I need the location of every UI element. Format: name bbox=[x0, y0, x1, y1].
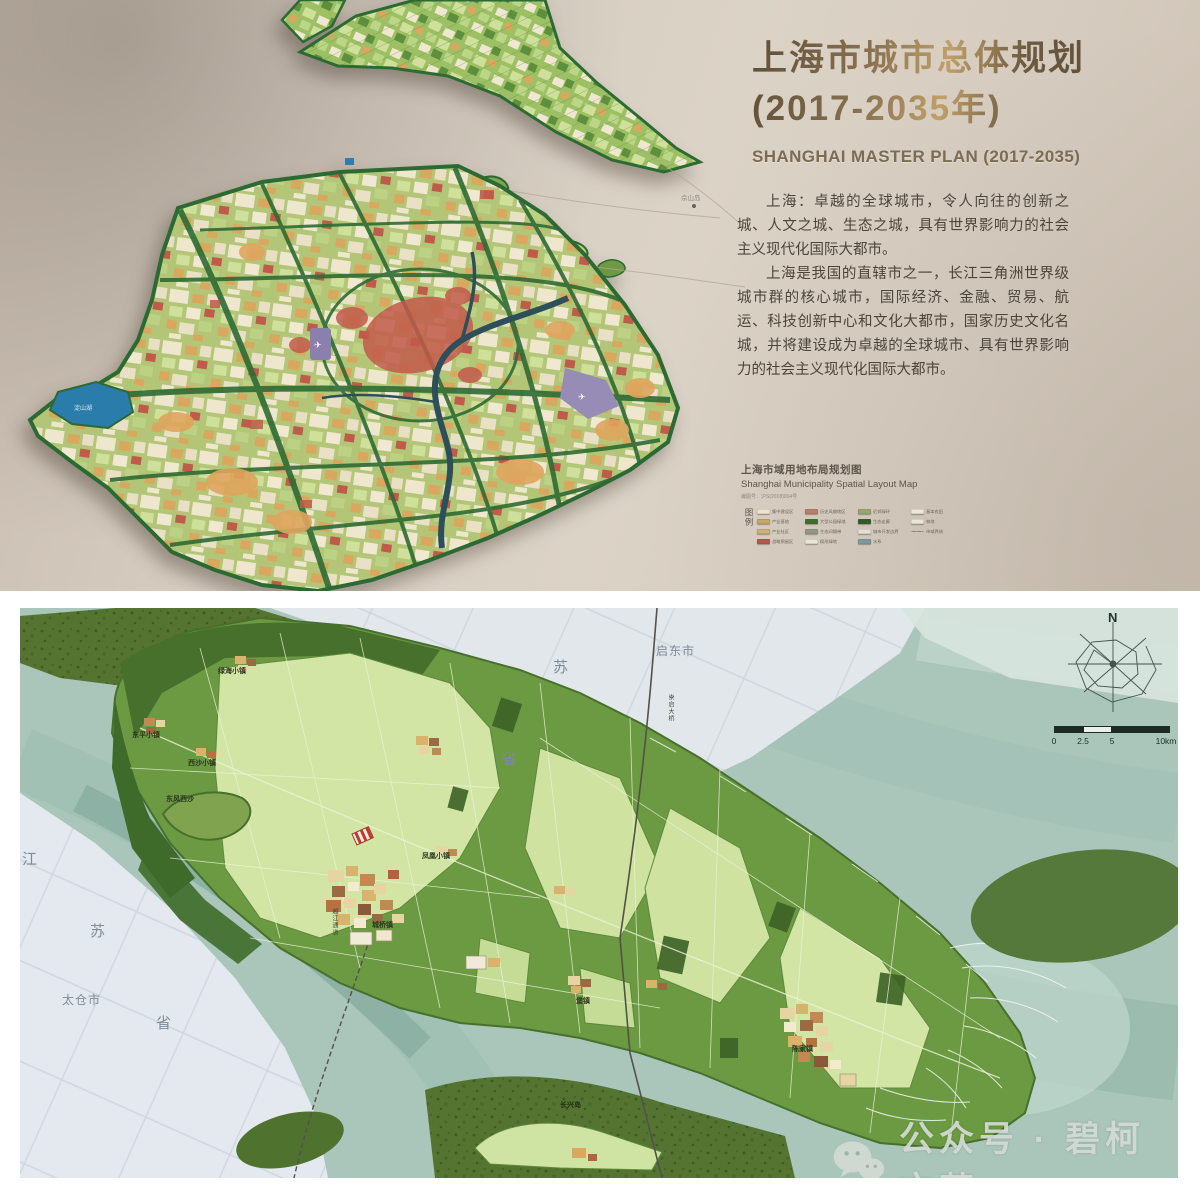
legend-item-label: 产业基地 bbox=[772, 519, 789, 525]
legend-item-label: 城市开发边界 bbox=[873, 529, 899, 535]
legend-item: 生态走廊 bbox=[858, 518, 903, 525]
watermark-text: 公众号 · 碧柯文苑 bbox=[899, 1111, 1178, 1178]
wechat-icon bbox=[832, 1136, 885, 1178]
legend-item-label: 战略预留区 bbox=[772, 539, 793, 545]
legend-item: 产业社区 bbox=[757, 528, 797, 535]
scale-tick: 2.5 bbox=[1077, 736, 1089, 746]
description-paragraph-2: 上海是我国的直辖市之一，长江三角洲世界级城市群的核心城市，国际经济、金融、贸易、… bbox=[737, 262, 1069, 382]
legend-sheet-number: 编图号：沪S(2018)004号 bbox=[741, 493, 1041, 500]
airplane-icon: ✈ bbox=[314, 340, 322, 350]
legend-column: 集中建设区产业基地产业社区战略预留区 bbox=[757, 508, 797, 545]
legend-item-label: 大型公园绿地 bbox=[820, 519, 846, 525]
photo-divider bbox=[0, 591, 1200, 608]
legend-swatch bbox=[757, 519, 770, 524]
plan-title-line1: 上海市城市总体规划 bbox=[752, 34, 1182, 84]
legend-item: 大型公园绿地 bbox=[805, 518, 850, 525]
legend-column: 基本农田林地市域界线 bbox=[911, 508, 946, 545]
legend-item-label: 林地 bbox=[926, 519, 935, 525]
legend-item: 战略预留区 bbox=[757, 538, 797, 545]
legend-item-label: 生态间隔带 bbox=[820, 529, 841, 535]
legend-item-label: 基本农田 bbox=[926, 509, 943, 515]
sheshan-island-label: 佘山岛 bbox=[681, 193, 701, 202]
shanghai-relief-model-map: 佘山岛 bbox=[0, 0, 745, 591]
legend-swatch bbox=[757, 529, 770, 534]
compass-n-label: N bbox=[1108, 610, 1117, 625]
legend-swatch bbox=[858, 539, 871, 544]
legend-swatch bbox=[805, 519, 818, 524]
scale-tick: 10km bbox=[1156, 736, 1177, 746]
legend-item-label: 市域界线 bbox=[926, 529, 943, 535]
map-scale-bar: 0 2.5 5 10km bbox=[1048, 720, 1176, 750]
legend-swatch bbox=[911, 509, 924, 514]
scale-tick: 5 bbox=[1110, 736, 1115, 746]
legend-swatch bbox=[757, 539, 770, 544]
north-compass-icon: N bbox=[1050, 612, 1175, 717]
legend-swatch bbox=[805, 509, 818, 514]
legend-column: 历史风貌地区大型公园绿地生态间隔带楔形绿地 bbox=[805, 508, 850, 545]
legend-item: 市域界线 bbox=[911, 528, 946, 535]
airplane-icon: ✈ bbox=[578, 392, 586, 402]
legend-item-label: 生态走廊 bbox=[873, 519, 890, 525]
legend-item: 集中建设区 bbox=[757, 508, 797, 515]
hongqiao-airport-patch: ✈ bbox=[310, 328, 331, 360]
legend-item: 水系 bbox=[858, 538, 903, 545]
legend-swatch bbox=[757, 509, 770, 514]
legend-column: 近郊绿环生态走廊城市开发边界水系 bbox=[858, 508, 903, 545]
legend-item: 林地 bbox=[911, 518, 946, 525]
legend-item: 产业基地 bbox=[757, 518, 797, 525]
legend-item: 基本农田 bbox=[911, 508, 946, 515]
legend-key-label: 图例 bbox=[741, 508, 753, 527]
description-paragraph-1: 上海：卓越的全球城市，令人向往的创新之城、人文之城、生态之城，具有世界影响力的社… bbox=[737, 190, 1069, 262]
watermark: 公众号 · 碧柯文苑 bbox=[832, 1111, 1178, 1178]
legend-item: 城市开发边界 bbox=[858, 528, 903, 535]
legend-items: 集中建设区产业基地产业社区战略预留区历史风貌地区大型公园绿地生态间隔带楔形绿地近… bbox=[757, 508, 946, 545]
legend-item-label: 历史风貌地区 bbox=[820, 509, 846, 515]
dianshan-lake-label: 淀山湖 bbox=[74, 404, 92, 412]
legend-swatch bbox=[858, 509, 871, 514]
legend-title-cn: 上海市域用地布局规划图 bbox=[741, 462, 1041, 477]
legend-item: 生态间隔带 bbox=[805, 528, 850, 535]
legend-item-label: 近郊绿环 bbox=[873, 509, 890, 515]
legend-item-label: 集中建设区 bbox=[772, 509, 793, 515]
plan-title-cn: 上海市城市总体规划 (2017-2035年) bbox=[752, 34, 1182, 133]
plan-description: 上海：卓越的全球城市，令人向往的创新之城、人文之城、生态之城，具有世界影响力的社… bbox=[737, 190, 1069, 383]
legend-item: 近郊绿环 bbox=[858, 508, 903, 515]
legend-swatch bbox=[858, 529, 871, 534]
legend-item-label: 楔形绿地 bbox=[820, 539, 837, 545]
legend-item: 楔形绿地 bbox=[805, 538, 850, 545]
plan-title-block: 上海市城市总体规划 (2017-2035年) SHANGHAI MASTER P… bbox=[752, 34, 1182, 167]
exhibition-wall-photo: 佘山岛 bbox=[0, 0, 1200, 591]
chongming-island-map bbox=[20, 608, 1178, 1178]
chongming-plan-photo: N 0 2.5 5 10km 启东市苏省江苏省太仓市绿海小镇东平小镇西沙小镇东风… bbox=[20, 608, 1178, 1178]
legend-swatch bbox=[911, 519, 924, 524]
map-legend-block: 上海市域用地布局规划图 Shanghai Municipality Spatia… bbox=[741, 462, 1041, 545]
legend-title-en: Shanghai Municipality Spatial Layout Map bbox=[741, 479, 1041, 490]
model-mainland: ✈ ✈ 淀山湖 bbox=[30, 166, 678, 591]
legend-swatch bbox=[805, 539, 818, 544]
plan-title-en: SHANGHAI MASTER PLAN (2017-2035) bbox=[752, 147, 1182, 167]
legend-item-label: 水系 bbox=[873, 539, 882, 545]
plan-title-line2: (2017-2035年) bbox=[752, 84, 1182, 134]
sheshan-island-dot bbox=[692, 204, 696, 208]
scale-tick: 0 bbox=[1052, 736, 1057, 746]
legend-swatch bbox=[805, 529, 818, 534]
legend-swatch bbox=[858, 519, 871, 524]
legend-swatch bbox=[911, 531, 924, 532]
legend-item-label: 产业社区 bbox=[772, 529, 789, 535]
legend-item: 历史风貌地区 bbox=[805, 508, 850, 515]
